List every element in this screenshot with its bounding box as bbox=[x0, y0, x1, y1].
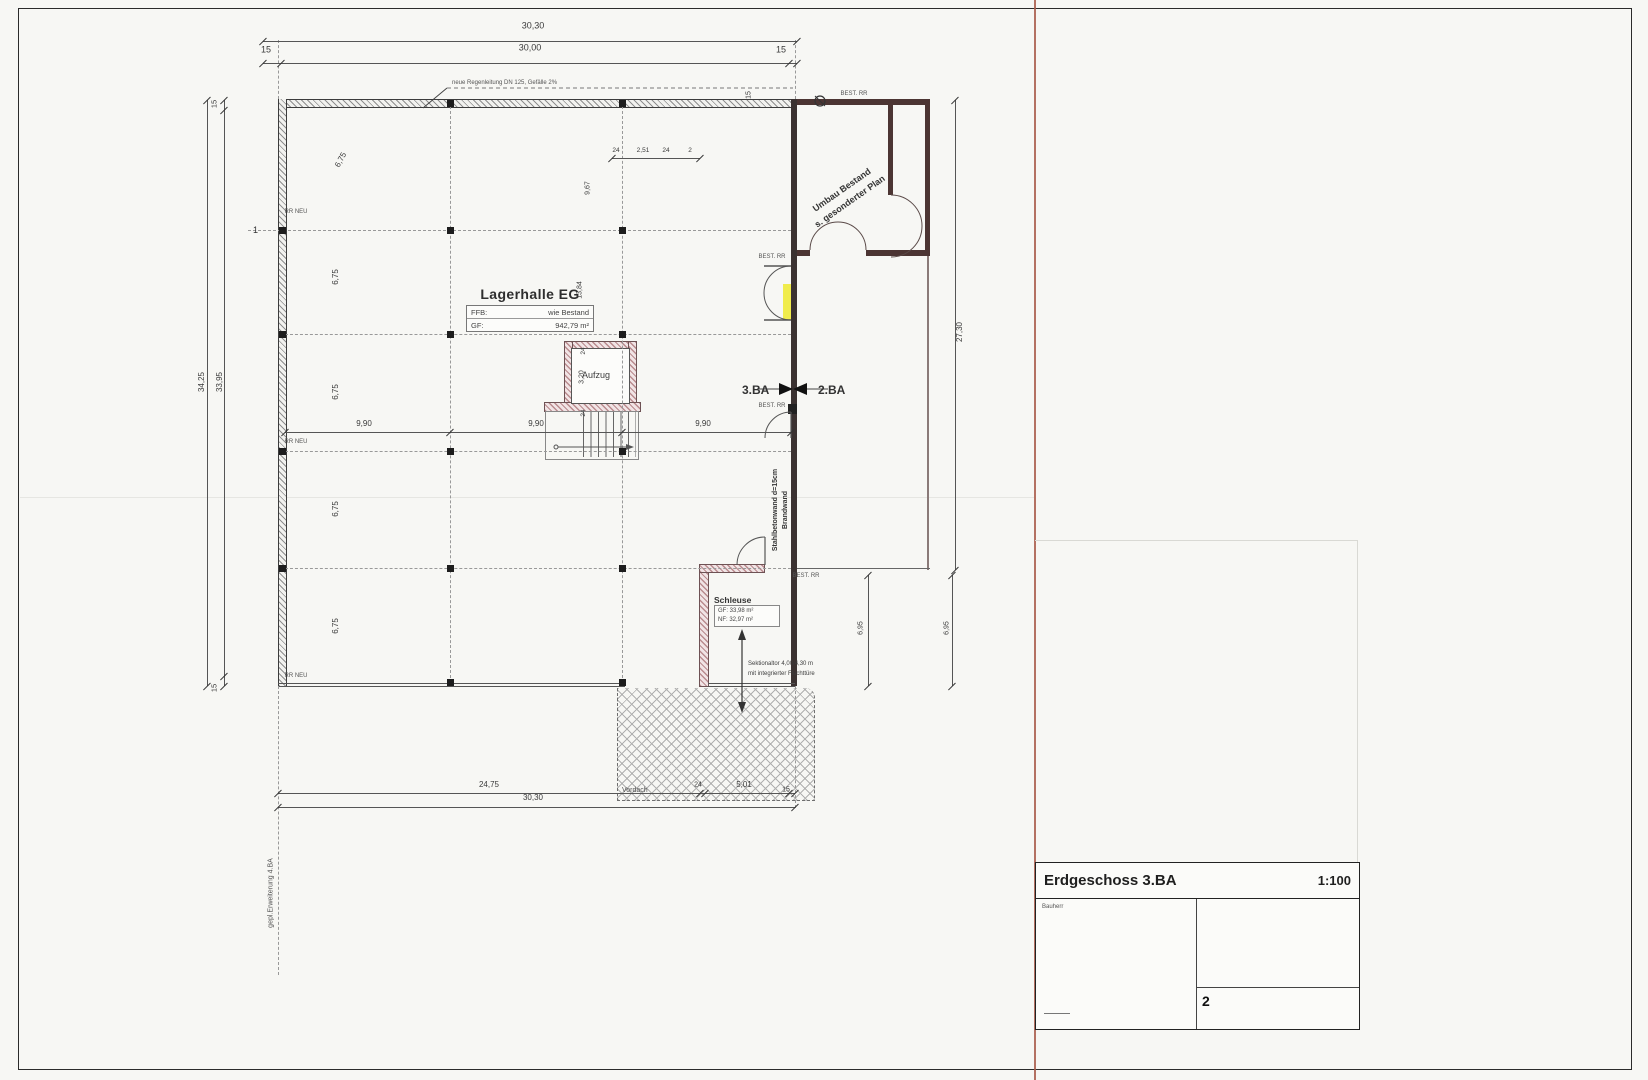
dimension-label: 30,00 bbox=[519, 44, 542, 53]
dimension-label: 15 bbox=[776, 46, 786, 55]
client-cell-label: Bauherr bbox=[1042, 904, 1063, 910]
dimension-label: 9,67 bbox=[585, 181, 592, 195]
pipe-label: BEST. RR bbox=[758, 403, 785, 409]
dimension-label: 2,51 bbox=[637, 148, 650, 155]
dimension-label: 15 bbox=[261, 46, 271, 55]
pipe-label: RR NEU bbox=[284, 439, 307, 445]
dimension-label: 24 bbox=[581, 409, 588, 416]
dimension-tick bbox=[864, 683, 872, 691]
dimension-label: 6,75 bbox=[332, 384, 340, 400]
title-block-header: Erdgeschoss 3.BA 1:100 bbox=[1036, 863, 1359, 899]
dimension-label: 9,90 bbox=[528, 420, 544, 428]
drawing-title: Erdgeschoss 3.BA bbox=[1044, 872, 1177, 889]
dimension-label: 15 bbox=[210, 100, 218, 108]
sheet-number: 2 bbox=[1202, 993, 1210, 1009]
dimension-label: 6,75 bbox=[332, 501, 340, 517]
dimension-tick bbox=[864, 572, 872, 580]
dimension-label: 2 bbox=[688, 148, 692, 155]
dimension-tick bbox=[277, 60, 285, 68]
dimension-label: 6,75 bbox=[334, 151, 348, 169]
dimension-label: 24,75 bbox=[479, 781, 499, 789]
dimension-label: 15 bbox=[210, 684, 218, 692]
dimension-tick bbox=[446, 429, 454, 437]
dimension-tick bbox=[281, 429, 289, 437]
dimension-label: 9,90 bbox=[695, 420, 711, 428]
dimension-tick bbox=[220, 673, 228, 681]
dimension-tick bbox=[948, 572, 956, 580]
dimension-label: 15 bbox=[746, 91, 753, 99]
dimension-tick bbox=[787, 429, 795, 437]
dimension-tick bbox=[608, 155, 616, 163]
dimension-label: 30,30 bbox=[522, 22, 545, 31]
dimension-label: 5,01 bbox=[736, 781, 752, 789]
drawing-canvas: Lagerhalle EG FFB: wie Bestand GF: 942,7… bbox=[0, 0, 1648, 1080]
dimension-label: 6,95 bbox=[858, 621, 865, 635]
dimension-tick bbox=[220, 97, 228, 105]
dimension-tick bbox=[618, 429, 626, 437]
dimension-label: 30,30 bbox=[523, 794, 543, 802]
pipe-label: BEST. RR bbox=[840, 91, 867, 97]
title-block-line bbox=[1196, 987, 1359, 988]
dimension-label: 9,90 bbox=[356, 420, 372, 428]
drawing-scale: 1:100 bbox=[1318, 873, 1351, 888]
dimension-label: 24 bbox=[694, 782, 702, 789]
labels-layer: 30,301530,001515242,512429,6713,843,2024… bbox=[0, 0, 1648, 1080]
title-block: Erdgeschoss 3.BA 1:100 Bauherr 2 bbox=[1035, 862, 1360, 1030]
dimension-tick bbox=[274, 804, 282, 812]
dimension-label: 24 bbox=[612, 148, 619, 155]
dimension-tick bbox=[951, 97, 959, 105]
pipe-label: RR NEU bbox=[284, 673, 307, 679]
pipe-label: RR NEU bbox=[284, 209, 307, 215]
dimension-tick bbox=[259, 60, 267, 68]
dimension-label: 6,95 bbox=[944, 621, 951, 635]
dimension-tick bbox=[948, 683, 956, 691]
pipe-label: BEST. RR bbox=[758, 254, 785, 260]
dimension-tick bbox=[791, 804, 799, 812]
dimension-label: 27,30 bbox=[956, 322, 964, 342]
dimension-label: 6,75 bbox=[332, 269, 340, 285]
dimension-label: 24 bbox=[581, 347, 588, 354]
title-block-line bbox=[1044, 1013, 1070, 1014]
dimension-tick bbox=[793, 38, 801, 46]
dimension-tick bbox=[274, 790, 282, 798]
dimension-tick bbox=[696, 155, 704, 163]
dimension-label: 33,95 bbox=[216, 372, 224, 392]
dimension-tick bbox=[220, 107, 228, 115]
dimension-label: 6,75 bbox=[332, 618, 340, 634]
title-block-divider bbox=[1196, 899, 1197, 1029]
pipe-label: BEST. RR bbox=[792, 573, 819, 579]
dimension-tick bbox=[220, 683, 228, 691]
dimension-label: 34,25 bbox=[198, 372, 206, 392]
dimension-label: 24 bbox=[662, 148, 669, 155]
dimension-tick bbox=[793, 60, 801, 68]
dimension-label: 3,20 bbox=[579, 370, 586, 384]
dimension-label: 13,84 bbox=[577, 281, 584, 299]
